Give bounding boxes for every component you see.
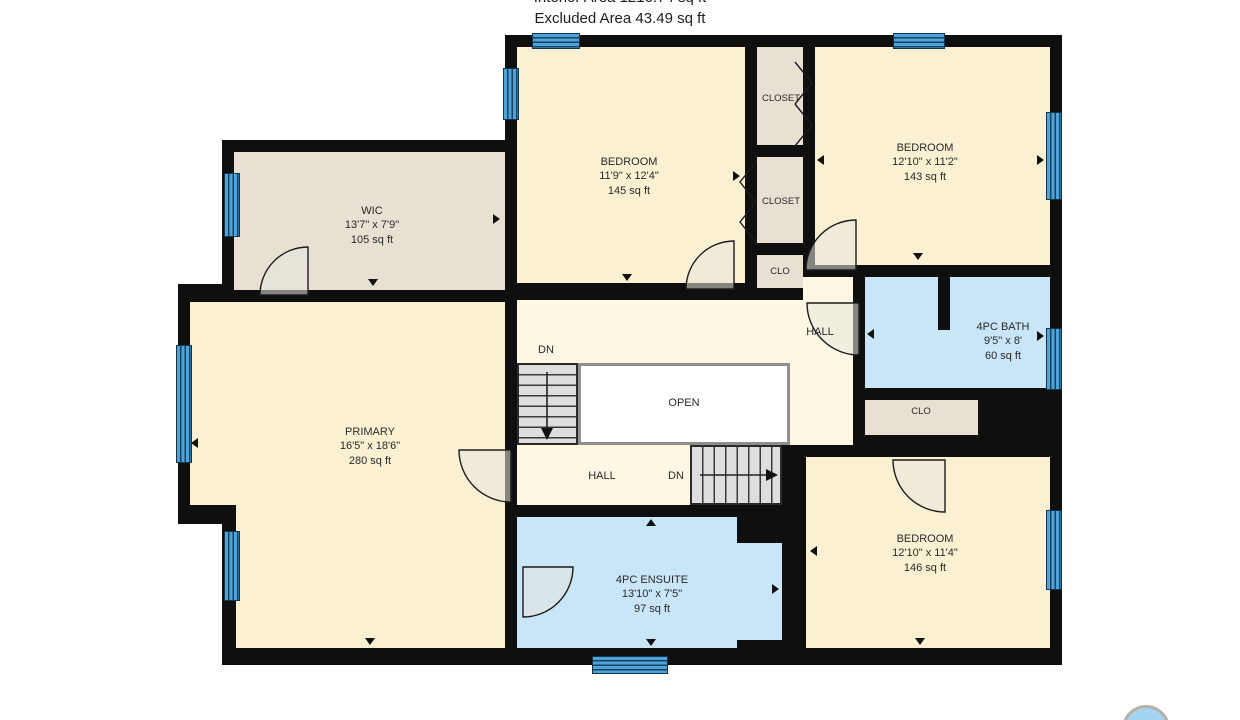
- label-bath-name: 4PC BATH: [977, 320, 1030, 334]
- room-primary-left: [190, 302, 240, 505]
- label-dn-upper: DN: [538, 344, 554, 356]
- label-primary: PRIMARY 16'5" x 18'6" 280 sq ft: [340, 425, 400, 468]
- interior-area-text: Interior Area 1216.74 sq ft: [0, 0, 1240, 6]
- label-closet1: CLOSET: [762, 93, 800, 104]
- label-wic-area: 105 sq ft: [345, 233, 399, 247]
- open-label: OPEN: [581, 397, 787, 409]
- label-bedroom-top-dims: 11'9" x 12'4": [599, 169, 659, 183]
- window-ensuite-south: [592, 656, 668, 674]
- label-bedroom-top: BEDROOM 11'9" x 12'4" 145 sq ft: [599, 155, 659, 198]
- open-to-below: OPEN: [578, 363, 790, 445]
- window-bedroom-top-west: [503, 68, 519, 120]
- label-primary-dims: 16'5" x 18'6": [340, 439, 400, 453]
- label-ensuite: 4PC ENSUITE 13'10" x 7'5" 97 sq ft: [616, 573, 688, 616]
- label-bedroom-right-dims: 12'10" x 11'2": [892, 155, 958, 169]
- label-bedroom-top-name: BEDROOM: [599, 155, 659, 169]
- label-bedroom-bottom-dims: 12'10" x 11'4": [892, 546, 958, 560]
- window-bedroom-bottom-east: [1046, 510, 1062, 590]
- label-bedroom-bottom-area: 146 sq ft: [892, 561, 958, 575]
- window-bedroom-right-east: [1046, 112, 1062, 200]
- excluded-area-text: Excluded Area 43.49 sq ft: [0, 10, 1240, 27]
- label-wic-dims: 13'7" x 7'9": [345, 218, 399, 232]
- window-wic-west: [224, 173, 240, 237]
- window-primary-southwest: [224, 531, 240, 601]
- window-bedroom-top-north: [532, 33, 580, 49]
- label-ensuite-name: 4PC ENSUITE: [616, 573, 688, 587]
- label-bedroom-right-name: BEDROOM: [892, 141, 958, 155]
- label-hall-upper: HALL: [806, 326, 834, 338]
- staircase-down: [690, 445, 782, 505]
- label-wic: WIC 13'7" x 7'9" 105 sq ft: [345, 204, 399, 247]
- hall-mid-right-area: [790, 363, 853, 445]
- staircase-up: [517, 363, 578, 445]
- bath-stub-wall: [938, 277, 950, 330]
- label-wic-name: WIC: [345, 204, 399, 218]
- label-bedroom-top-area: 145 sq ft: [599, 184, 659, 198]
- label-bath-area: 60 sq ft: [977, 349, 1030, 363]
- brand-logo: [1122, 705, 1170, 720]
- label-ensuite-dims: 13'10" x 7'5": [616, 587, 688, 601]
- label-clo-mid: CLO: [911, 406, 931, 417]
- window-bedroom-right-north: [893, 33, 945, 49]
- label-primary-name: PRIMARY: [340, 425, 400, 439]
- window-bath-east: [1046, 328, 1062, 390]
- label-ensuite-area: 97 sq ft: [616, 602, 688, 616]
- window-primary-west: [176, 345, 192, 463]
- hall-top-area: [517, 300, 853, 363]
- label-bedroom-bottom: BEDROOM 12'10" x 11'4" 146 sq ft: [892, 532, 958, 575]
- label-dn-lower: DN: [668, 470, 684, 482]
- room-ensuite-notch: [737, 543, 782, 640]
- label-bedroom-bottom-name: BEDROOM: [892, 532, 958, 546]
- label-clo-top: CLO: [770, 266, 790, 277]
- floorplan-page: Interior Area 1216.74 sq ft Excluded Are…: [0, 0, 1240, 720]
- label-hall-lower: HALL: [588, 470, 616, 482]
- label-bath-dims: 9'5" x 8': [977, 334, 1030, 348]
- label-primary-area: 280 sq ft: [340, 454, 400, 468]
- label-bedroom-right: BEDROOM 12'10" x 11'2" 143 sq ft: [892, 141, 958, 184]
- room-primary-main: [236, 302, 505, 648]
- label-bedroom-right-area: 143 sq ft: [892, 170, 958, 184]
- label-bath: 4PC BATH 9'5" x 8' 60 sq ft: [977, 320, 1030, 363]
- label-closet2: CLOSET: [762, 196, 800, 207]
